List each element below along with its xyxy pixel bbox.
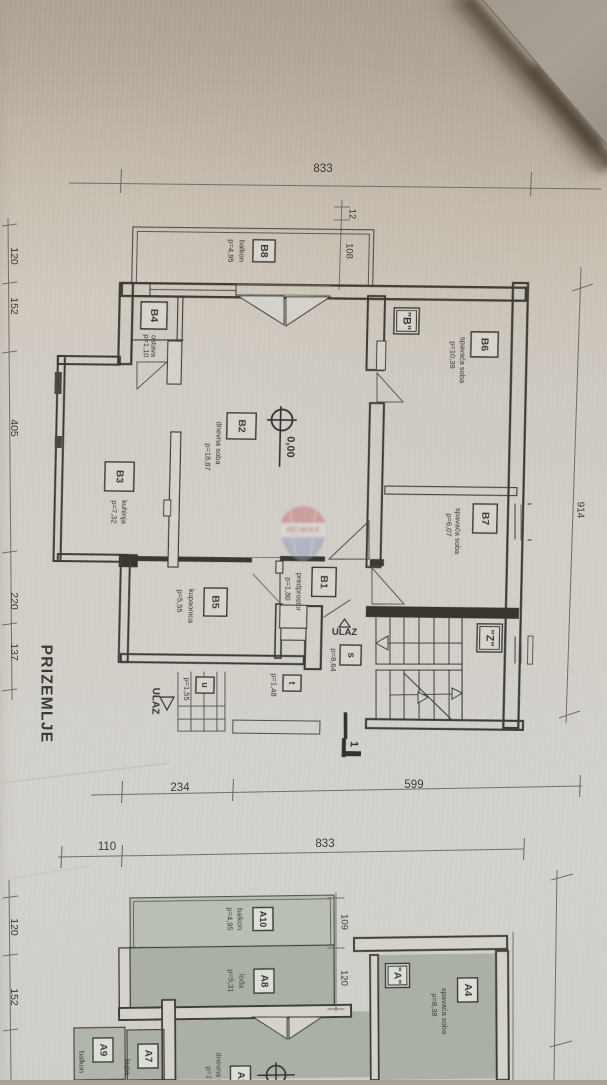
svg-text:p=5,55: p=5,55 [175,589,185,612]
svg-text:A7: A7 [142,1050,153,1063]
svg-text:B5: B5 [209,595,221,609]
svg-text:predprostor: predprostor [294,573,304,612]
svg-text:A9: A9 [97,1043,108,1056]
svg-text:spavaća soba: spavaća soba [440,988,449,1035]
svg-text:234: 234 [170,782,190,794]
svg-text:A10: A10 [258,911,268,928]
svg-text:dnevna soba: dnevna soba [214,1053,223,1080]
svg-text:p=8,64: p=8,64 [329,648,339,671]
svg-text:p=7,32: p=7,32 [110,500,120,523]
svg-text:balkon: balkon [77,1051,86,1073]
svg-text:p=1,55: p=1,55 [182,677,192,700]
svg-text:p=5,31: p=5,31 [226,969,235,992]
svg-text:599: 599 [404,779,423,791]
svg-text:p=17,9: p=17,9 [204,1066,213,1080]
svg-text:kuhinja: kuhinja [120,500,130,525]
svg-text:t: t [287,681,297,684]
svg-text:110: 110 [98,841,116,853]
svg-text:lođa: lođa [237,974,246,989]
svg-text:220: 220 [8,592,20,610]
svg-text:833: 833 [313,163,332,175]
svg-text:s: s [345,652,356,658]
svg-text:spavaća soba: spavaća soba [458,337,468,384]
svg-text:B7: B7 [479,512,491,526]
svg-text:A8: A8 [258,975,269,988]
svg-text:p=4,95: p=4,95 [225,907,234,930]
svg-text:p=8,38: p=8,38 [430,993,439,1016]
svg-text:p=18,87: p=18,87 [203,443,213,470]
svg-text:137: 137 [8,643,20,661]
svg-text:dnevna soba: dnevna soba [214,421,224,465]
svg-text:0,00: 0,00 [284,436,296,458]
svg-text:833: 833 [315,838,334,850]
svg-text:405: 405 [8,419,20,437]
svg-text:152: 152 [8,297,20,315]
svg-text:B8: B8 [258,244,270,258]
svg-text:u: u [200,682,210,688]
svg-text:B1: B1 [318,575,330,589]
svg-text:ULAZ: ULAZ [332,627,358,638]
svg-text:p=1,80: p=1,80 [283,577,293,600]
svg-text:12: 12 [347,209,358,220]
svg-text:"A": "A" [391,967,403,985]
svg-text:"Z": "Z" [483,629,495,646]
svg-text:108: 108 [344,243,355,259]
svg-text:ULAZ: ULAZ [149,688,161,715]
svg-text:120: 120 [338,970,349,986]
svg-text:RE/MAX: RE/MAX [286,526,320,535]
svg-text:B4: B4 [148,309,160,323]
svg-text:balkon: balkon [235,908,244,930]
svg-text:120: 120 [8,918,20,936]
svg-text:914: 914 [575,502,586,519]
svg-text:B2: B2 [235,419,247,433]
svg-text:kupaonica: kupaonica [186,589,196,624]
svg-text:kupa.: kupa. [123,1059,132,1077]
svg-text:p=1,10: p=1,10 [142,334,152,357]
svg-text:1: 1 [347,741,359,747]
svg-text:p=6,07: p=6,07 [444,513,454,536]
svg-text:p=10,39: p=10,39 [448,341,458,368]
svg-text:"B": "B" [400,312,412,331]
svg-text:balkon: balkon [237,240,246,262]
svg-text:152: 152 [8,988,20,1006]
svg-text:A1: A1 [235,1072,246,1080]
svg-text:A4: A4 [462,983,473,996]
svg-text:120: 120 [8,247,20,265]
svg-text:PRIZEMLJE: PRIZEMLJE [38,645,55,744]
svg-text:p=1,48: p=1,48 [269,673,279,696]
svg-text:109: 109 [338,914,349,930]
svg-text:p=4,95: p=4,95 [226,239,236,262]
svg-text:B6: B6 [478,338,490,352]
svg-text:B3: B3 [113,470,125,484]
